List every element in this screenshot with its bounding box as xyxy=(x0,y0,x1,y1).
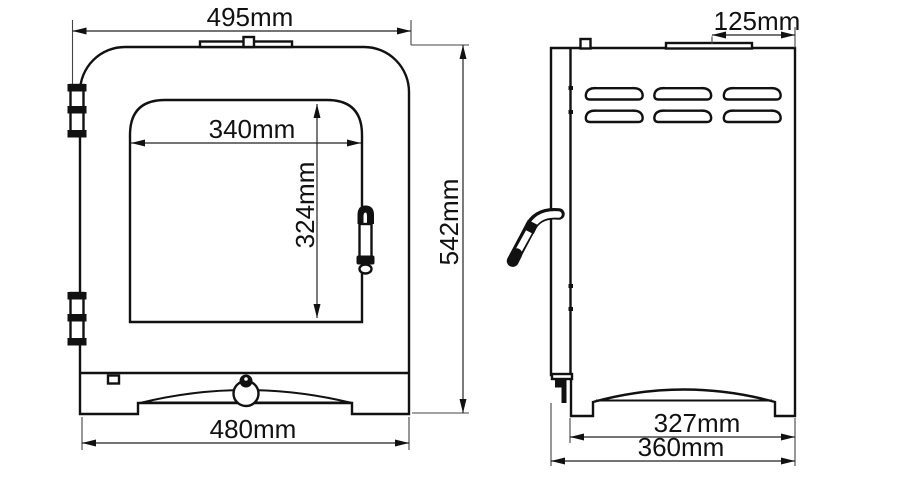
stove-dimension-drawing: 495mm 340mm 324mm 542mm 480mm xyxy=(0,0,900,480)
dim-base-width: 480mm xyxy=(82,414,409,450)
dim-label-overall-depth: 360mm xyxy=(638,432,725,462)
front-hinge-top xyxy=(68,84,87,138)
dim-label-overall-height: 542mm xyxy=(434,179,464,266)
dim-label-overall-width: 495mm xyxy=(207,2,294,32)
front-hinge-bottom xyxy=(68,292,87,346)
side-hinge-pin-1 xyxy=(569,86,574,90)
front-handle-tip xyxy=(360,265,372,274)
dim-label-base-width: 480mm xyxy=(210,414,297,444)
front-ashpan-latch xyxy=(240,375,253,388)
side-hinge-pin-4 xyxy=(569,307,574,311)
side-top-plate xyxy=(666,43,752,49)
dim-flue-offset: 125mm xyxy=(712,6,800,48)
front-handle-shaft xyxy=(360,224,372,257)
front-top-knob xyxy=(244,37,255,47)
dim-overall-height: 542mm xyxy=(411,45,469,413)
dim-label-glass-height: 324mm xyxy=(290,162,320,249)
front-base-latch xyxy=(108,376,119,384)
side-door-latch xyxy=(552,374,572,403)
dim-label-flue-offset: 125mm xyxy=(714,6,801,36)
drawing-canvas: 495mm 340mm 324mm 542mm 480mm xyxy=(0,0,900,480)
side-top-knob xyxy=(581,39,591,49)
side-hinge-pin-2 xyxy=(569,110,574,114)
side-body-outline xyxy=(551,48,795,416)
front-handle-band xyxy=(357,256,375,265)
side-view: 125mm 327mm 360mm xyxy=(513,6,801,466)
front-ashpan-latch-pin xyxy=(244,377,248,381)
front-view: 495mm 340mm 324mm 542mm 480mm xyxy=(68,2,470,450)
side-hinge-pin-3 xyxy=(569,284,574,288)
dim-label-glass-width: 340mm xyxy=(209,114,296,144)
